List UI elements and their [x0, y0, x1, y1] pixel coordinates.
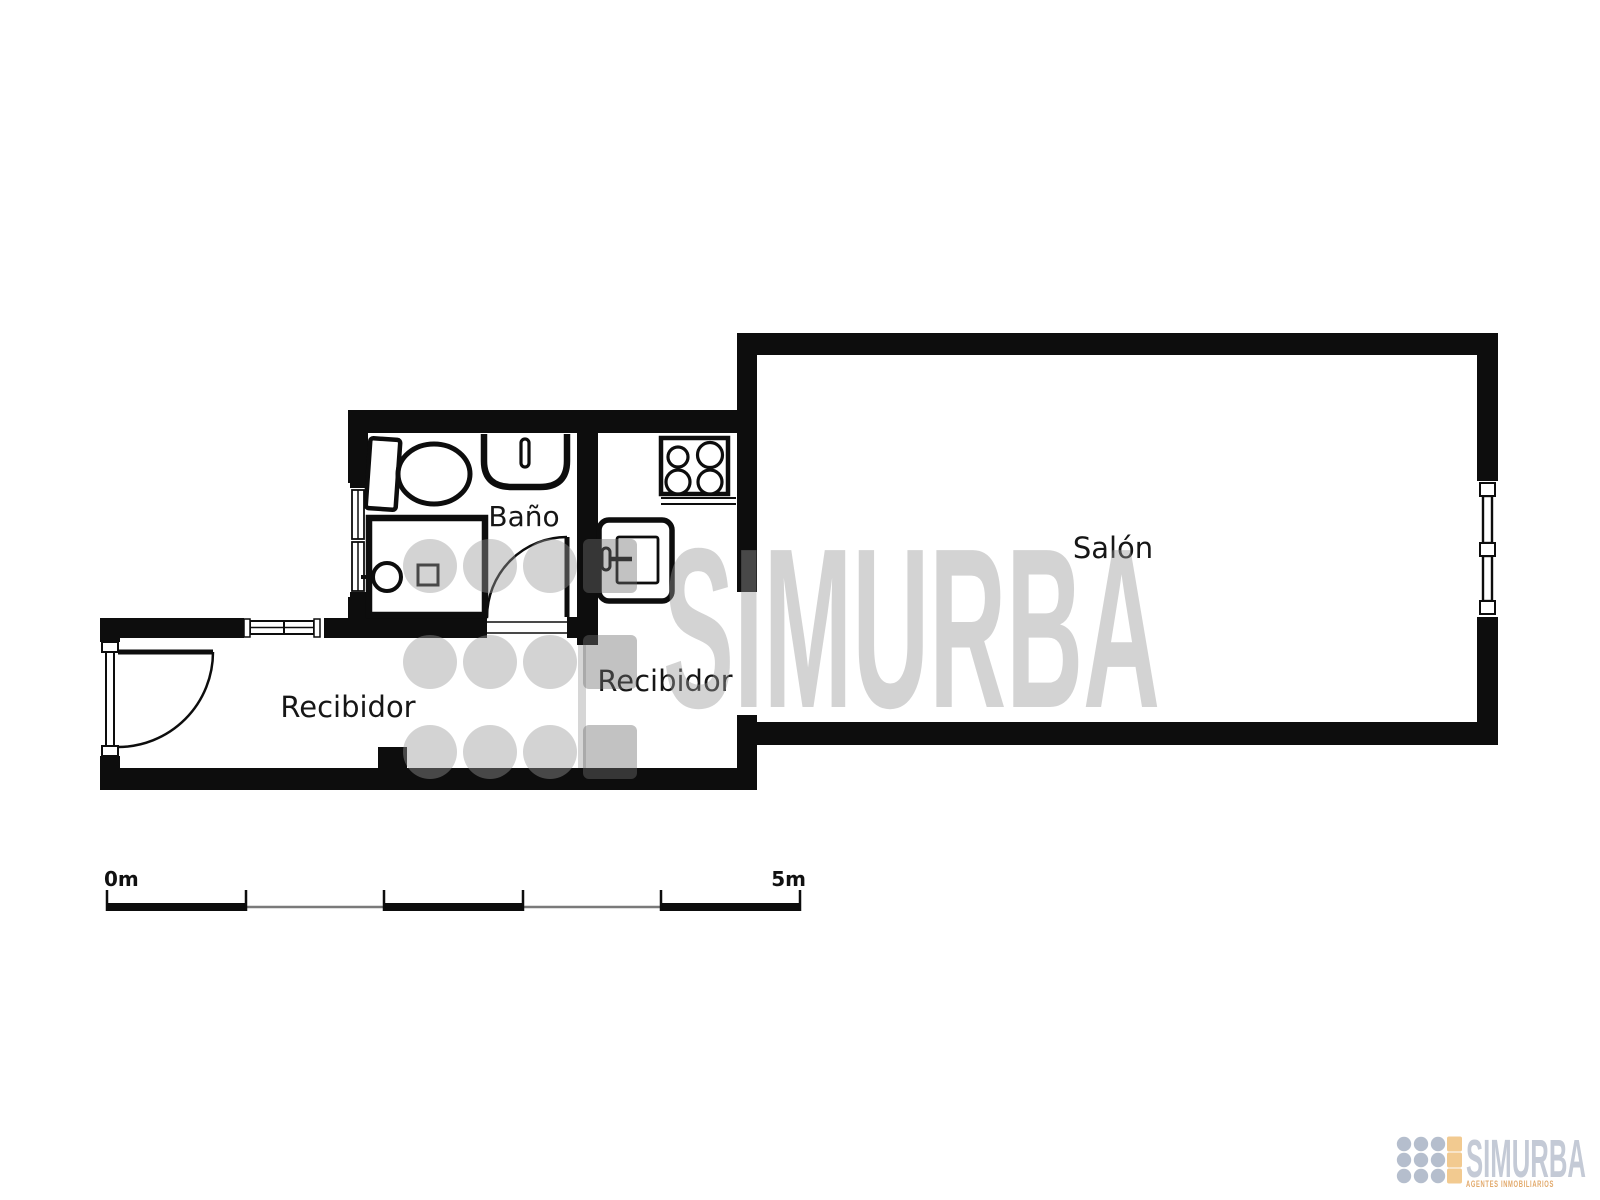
watermark-accent-square — [583, 539, 637, 593]
watermark-dot — [403, 725, 457, 779]
wall-entrance-jamb-bottom — [100, 756, 120, 790]
toilet-tank — [366, 438, 401, 510]
toilet-bowl — [398, 444, 470, 504]
stove-burner — [698, 443, 723, 468]
watermark-dot — [403, 635, 457, 689]
wall-salon-top — [737, 333, 1498, 355]
logo-dot — [1414, 1153, 1428, 1167]
floor-plan-canvas: Baño Recibidor Recibidor Salón SIMURBA — [0, 0, 1600, 1200]
scale-start-label: 0m — [104, 867, 139, 891]
watermark-brand-text: SIMURBA — [663, 502, 1160, 756]
watermark-dot — [523, 725, 577, 779]
window-jamb — [1480, 483, 1495, 496]
wall-bathroom-bottom-left — [348, 617, 487, 638]
stove — [661, 438, 736, 504]
logo-accent-square — [1447, 1137, 1462, 1152]
logo-dot — [1431, 1137, 1445, 1151]
watermark-dot — [463, 635, 517, 689]
door-jamb — [102, 746, 118, 756]
watermark-dot — [403, 539, 457, 593]
center-watermark: SIMURBA — [403, 502, 1160, 779]
logo-accent-square — [1447, 1153, 1462, 1168]
watermark-dot — [523, 635, 577, 689]
washbasin-faucet — [521, 439, 529, 467]
window-mullion — [1480, 543, 1495, 556]
scale-segment-filled — [107, 903, 246, 911]
watermark-dot — [463, 725, 517, 779]
logo-tagline-text: AGENTES INMOBILIARIOS — [1466, 1179, 1554, 1189]
window-jamb — [1480, 601, 1495, 614]
toilet — [366, 438, 470, 510]
stove-burner — [698, 470, 722, 494]
scale-bar: 0m 5m — [104, 867, 806, 911]
watermark-dot — [463, 539, 517, 593]
recibidor-top-window — [244, 616, 324, 640]
logo-dot — [1414, 1169, 1428, 1183]
wall-entrance-jamb-top — [100, 618, 120, 642]
door-swing-arc — [118, 652, 213, 747]
wall-recibidor-top-left — [100, 618, 250, 638]
salon-right-window — [1476, 481, 1499, 617]
window-frame — [1483, 496, 1492, 543]
door-jamb — [102, 642, 118, 652]
wall-bathroom-bottom-right — [567, 617, 598, 638]
wall-bathroom-kitchen-top — [348, 410, 757, 433]
room-label-bano: Baño — [488, 500, 559, 533]
logo-dot — [1431, 1169, 1445, 1183]
logo-dot — [1397, 1137, 1411, 1151]
window-jamb — [350, 483, 366, 488]
wall-stub — [378, 747, 407, 768]
logo-dot — [1397, 1153, 1411, 1167]
door-opening — [100, 642, 120, 756]
shower-head — [373, 563, 401, 591]
window-jamb — [244, 619, 250, 637]
scale-end-label: 5m — [771, 867, 806, 891]
floor-plan-drawing: Baño Recibidor Recibidor Salón SIMURBA — [0, 0, 1600, 1200]
brand-logo: SIMURBA AGENTES INMOBILIARIOS — [1397, 1129, 1586, 1189]
logo-accent-square — [1447, 1169, 1462, 1184]
watermark-dot — [523, 539, 577, 593]
scale-segment-filled — [384, 903, 523, 911]
window-jamb — [350, 592, 366, 597]
logo-dot — [1414, 1137, 1428, 1151]
entrance-door — [100, 642, 213, 756]
watermark-accent-square — [583, 725, 637, 779]
stove-burner — [666, 470, 690, 494]
window-frame — [1483, 556, 1492, 601]
logo-dot — [1431, 1153, 1445, 1167]
watermark-accent-square — [583, 635, 637, 689]
logo-dot-grid — [1397, 1137, 1462, 1184]
washbasin — [484, 434, 567, 487]
room-label-recibidor-left: Recibidor — [280, 690, 415, 724]
logo-dot — [1397, 1169, 1411, 1183]
watermark-dot-grid — [403, 539, 637, 779]
scale-segment-filled — [661, 903, 800, 911]
stove-burner — [668, 447, 688, 467]
window-jamb — [314, 619, 320, 637]
